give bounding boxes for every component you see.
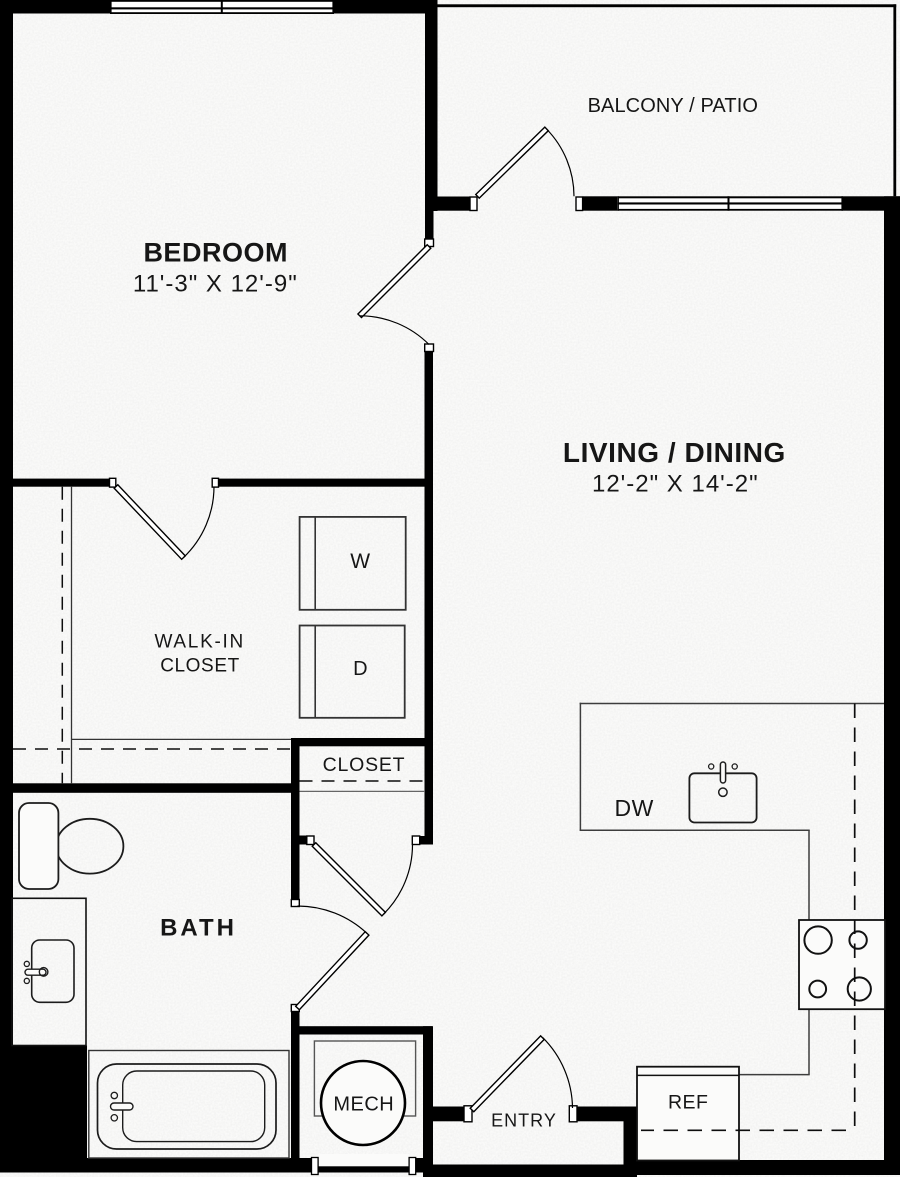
svg-text:BEDROOM: BEDROOM xyxy=(143,238,288,268)
svg-text:BATH: BATH xyxy=(160,915,237,942)
svg-text:CLOSET: CLOSET xyxy=(160,655,240,676)
svg-text:WALK-IN: WALK-IN xyxy=(155,631,245,652)
svg-text:12'-2" X 14'-2": 12'-2" X 14'-2" xyxy=(592,471,759,498)
svg-text:MECH: MECH xyxy=(333,1094,394,1116)
svg-text:LIVING / DINING: LIVING / DINING xyxy=(563,437,786,468)
svg-text:REF: REF xyxy=(668,1092,709,1114)
svg-text:BALCONY / PATIO: BALCONY / PATIO xyxy=(588,95,758,117)
svg-text:11'-3" X 12'-9": 11'-3" X 12'-9" xyxy=(133,271,298,298)
svg-text:CLOSET: CLOSET xyxy=(323,754,406,776)
svg-text:W: W xyxy=(350,550,370,573)
svg-text:DW: DW xyxy=(615,795,654,821)
svg-text:D: D xyxy=(353,658,367,680)
svg-text:ENTRY: ENTRY xyxy=(491,1111,557,1131)
